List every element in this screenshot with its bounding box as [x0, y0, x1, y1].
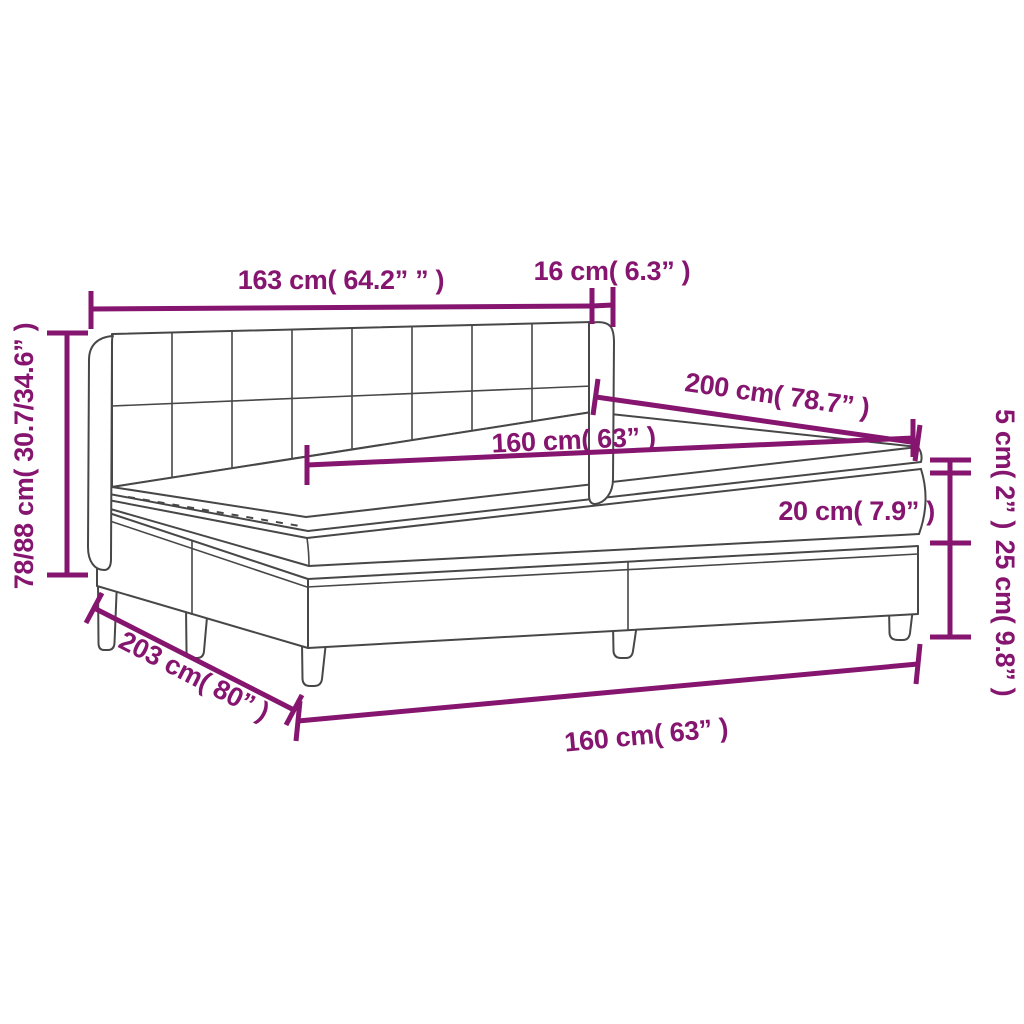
mattress-front-corner	[307, 538, 309, 566]
label-headboard-width: 163 cm( 64.2” ” )	[238, 265, 445, 295]
headboard-left-wing	[88, 336, 113, 570]
box-spring-base	[97, 509, 918, 648]
dim-line	[91, 306, 592, 309]
dim-tick	[915, 425, 920, 461]
label-topper-thickness: 5 cm( 2” )	[990, 409, 1020, 529]
label-base-width: 160 cm( 63” )	[563, 713, 729, 758]
dim-line	[592, 305, 613, 306]
dimension-layer-heights	[930, 460, 971, 637]
label-mattress-thickness: 20 cm( 7.9” )	[778, 496, 935, 526]
dimension-headboard-side-depth	[592, 287, 613, 327]
label-overall-height: 78/88 cm( 30.7/34.6” )	[9, 323, 39, 590]
label-headboard-side-depth: 16 cm( 6.3” )	[534, 256, 691, 286]
label-base-height: 25 cm( 9.8” )	[990, 540, 1020, 697]
dim-line	[298, 664, 918, 721]
bed-dimension-diagram: 163 cm( 64.2” ” ) 16 cm( 6.3” ) 78/88 cm…	[0, 0, 1024, 1024]
dim-tick	[916, 644, 920, 684]
dimension-overall-height	[47, 333, 88, 575]
